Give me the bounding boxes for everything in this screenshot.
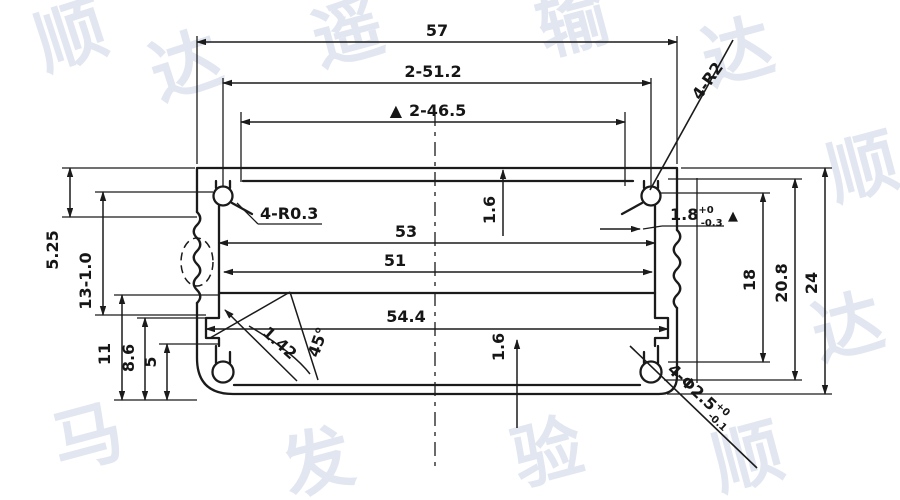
watermark-char: 遥 (303, 0, 392, 81)
dim-label-4-r0-3: 4-R0.3 (260, 204, 318, 223)
dim-chamfer-1-42: 1.42 (225, 310, 301, 381)
dim-label-18: 18 (740, 269, 759, 291)
dim-label-54-4: 54.4 (386, 307, 425, 326)
dim-left-5-25: 5.25 (43, 168, 197, 270)
dim-left-8-6: 8.6 (119, 318, 206, 400)
left-wall-inner (206, 206, 219, 346)
watermark-char: 达 (140, 17, 232, 117)
dim-inner-width-51: 51 (224, 251, 652, 272)
dim-label-24: 24 (802, 272, 821, 294)
dim-label-2-46-5-value: 2-46.5 (409, 101, 466, 120)
screw-boss-top-left (214, 187, 233, 206)
dim-slot-1-8: 1.8+0-0.3 ▲ (600, 205, 738, 229)
dim-label-1-6-top: 1.6 (480, 196, 499, 224)
dim-left-11: 11 (95, 295, 219, 400)
dim-label-45deg: 45° (304, 325, 332, 360)
dim-label-51: 51 (384, 251, 406, 270)
detail-callout-circle (181, 238, 213, 286)
profile-outline (194, 168, 681, 394)
dim-label-5-25: 5.25 (43, 230, 62, 269)
dim-overall-width: 57 (197, 21, 677, 164)
knurl-right (674, 230, 681, 308)
datum-triangle-icon: ▲ (390, 101, 403, 120)
dim-inner-width-53: 53 (219, 222, 655, 243)
extrusion-profile-drawing: 顺 达 遥 输 达 顺 达 马 发 验 顺 (0, 0, 900, 500)
watermark-char: 发 (273, 414, 362, 500)
knurl-left (194, 212, 201, 303)
dim-bottom-wall-1-6: 1.6 (489, 333, 517, 428)
dim-left-5: 5 (141, 344, 219, 400)
dim-label-2-46-5: ▲2-46.5 (390, 101, 467, 120)
dim-label-1-6-bottom: 1.6 (489, 333, 508, 361)
watermark-char: 输 (528, 0, 618, 71)
dim-left-13-1-0: 13-1.0 (76, 192, 213, 315)
dim-label-2-51-2: 2-51.2 (404, 62, 461, 81)
dim-label-20-8: 20.8 (772, 263, 791, 302)
dim-label-8-6: 8.6 (119, 344, 138, 372)
dim-label-13-1-0: 13-1.0 (76, 252, 95, 309)
dim-label-5: 5 (141, 356, 160, 367)
dim-label-11: 11 (95, 343, 114, 365)
watermark-char: 马 (43, 389, 132, 486)
dim-label-4-phi2-5: 4-Φ2.5+0-0.1 (661, 360, 738, 434)
screw-boss-bottom-right (641, 362, 662, 383)
dim-holes-4-phi2-5: 4-Φ2.5+0-0.1 (630, 346, 757, 468)
dim-label-57: 57 (426, 21, 448, 40)
watermark-layer: 顺 达 遥 输 达 顺 达 马 发 验 顺 (25, 0, 900, 500)
dim-label-53: 53 (395, 222, 417, 241)
dim-width-2-46-5: ▲2-46.5 (241, 101, 625, 186)
datum-triangle-icon: ▲ (728, 209, 738, 224)
engineering-drawing-page: 顺 达 遥 输 达 顺 达 马 发 验 顺 (0, 0, 900, 500)
watermark-char: 顺 (25, 0, 117, 86)
screw-boss-bottom-left (213, 362, 234, 383)
